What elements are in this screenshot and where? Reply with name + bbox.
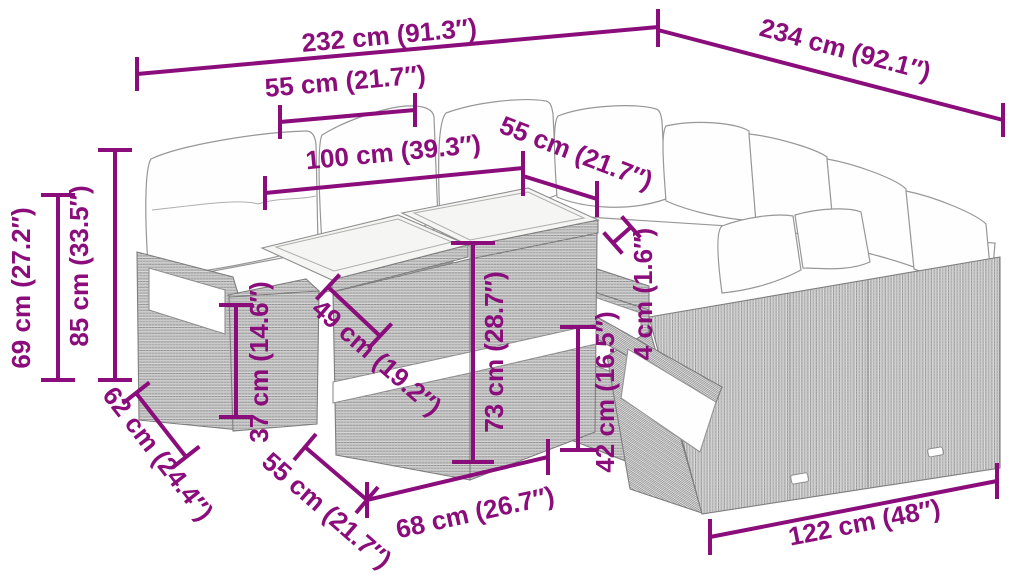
dim-back-height-label: 85 cm (33.5″)	[64, 185, 94, 346]
stool-body	[229, 291, 319, 431]
dim-seat-width-label: 55 cm (21.7″)	[264, 59, 427, 103]
dimension-diagram: 232 cm (91.3″) 234 cm (92.1″) 55 cm (21.…	[0, 0, 1012, 580]
diagram-canvas: 232 cm (91.3″) 234 cm (92.1″) 55 cm (21.…	[0, 0, 1012, 580]
dim-back-height: 85 cm (33.5″)	[64, 150, 132, 380]
dim-overall-width-right-label: 234 cm (92.1″)	[757, 12, 935, 86]
back-cushion	[663, 122, 756, 221]
dim-seat-height-label: 42 cm (16.5″)	[590, 311, 620, 472]
dim-table-height-label: 73 cm (28.7″)	[479, 271, 509, 432]
dim-armrest-height-label: 69 cm (27.2″)	[6, 207, 36, 368]
dim-overall-width-right: 234 cm (92.1″)	[658, 12, 1003, 137]
dim-under-seat-height-label: 37 cm (14.6″)	[244, 281, 274, 442]
dim-cushion-thickness-label: 4 cm (1.6″)	[628, 228, 658, 360]
dim-right-module-width-label: 122 cm (48″)	[786, 493, 943, 552]
front-cushion	[795, 209, 870, 269]
